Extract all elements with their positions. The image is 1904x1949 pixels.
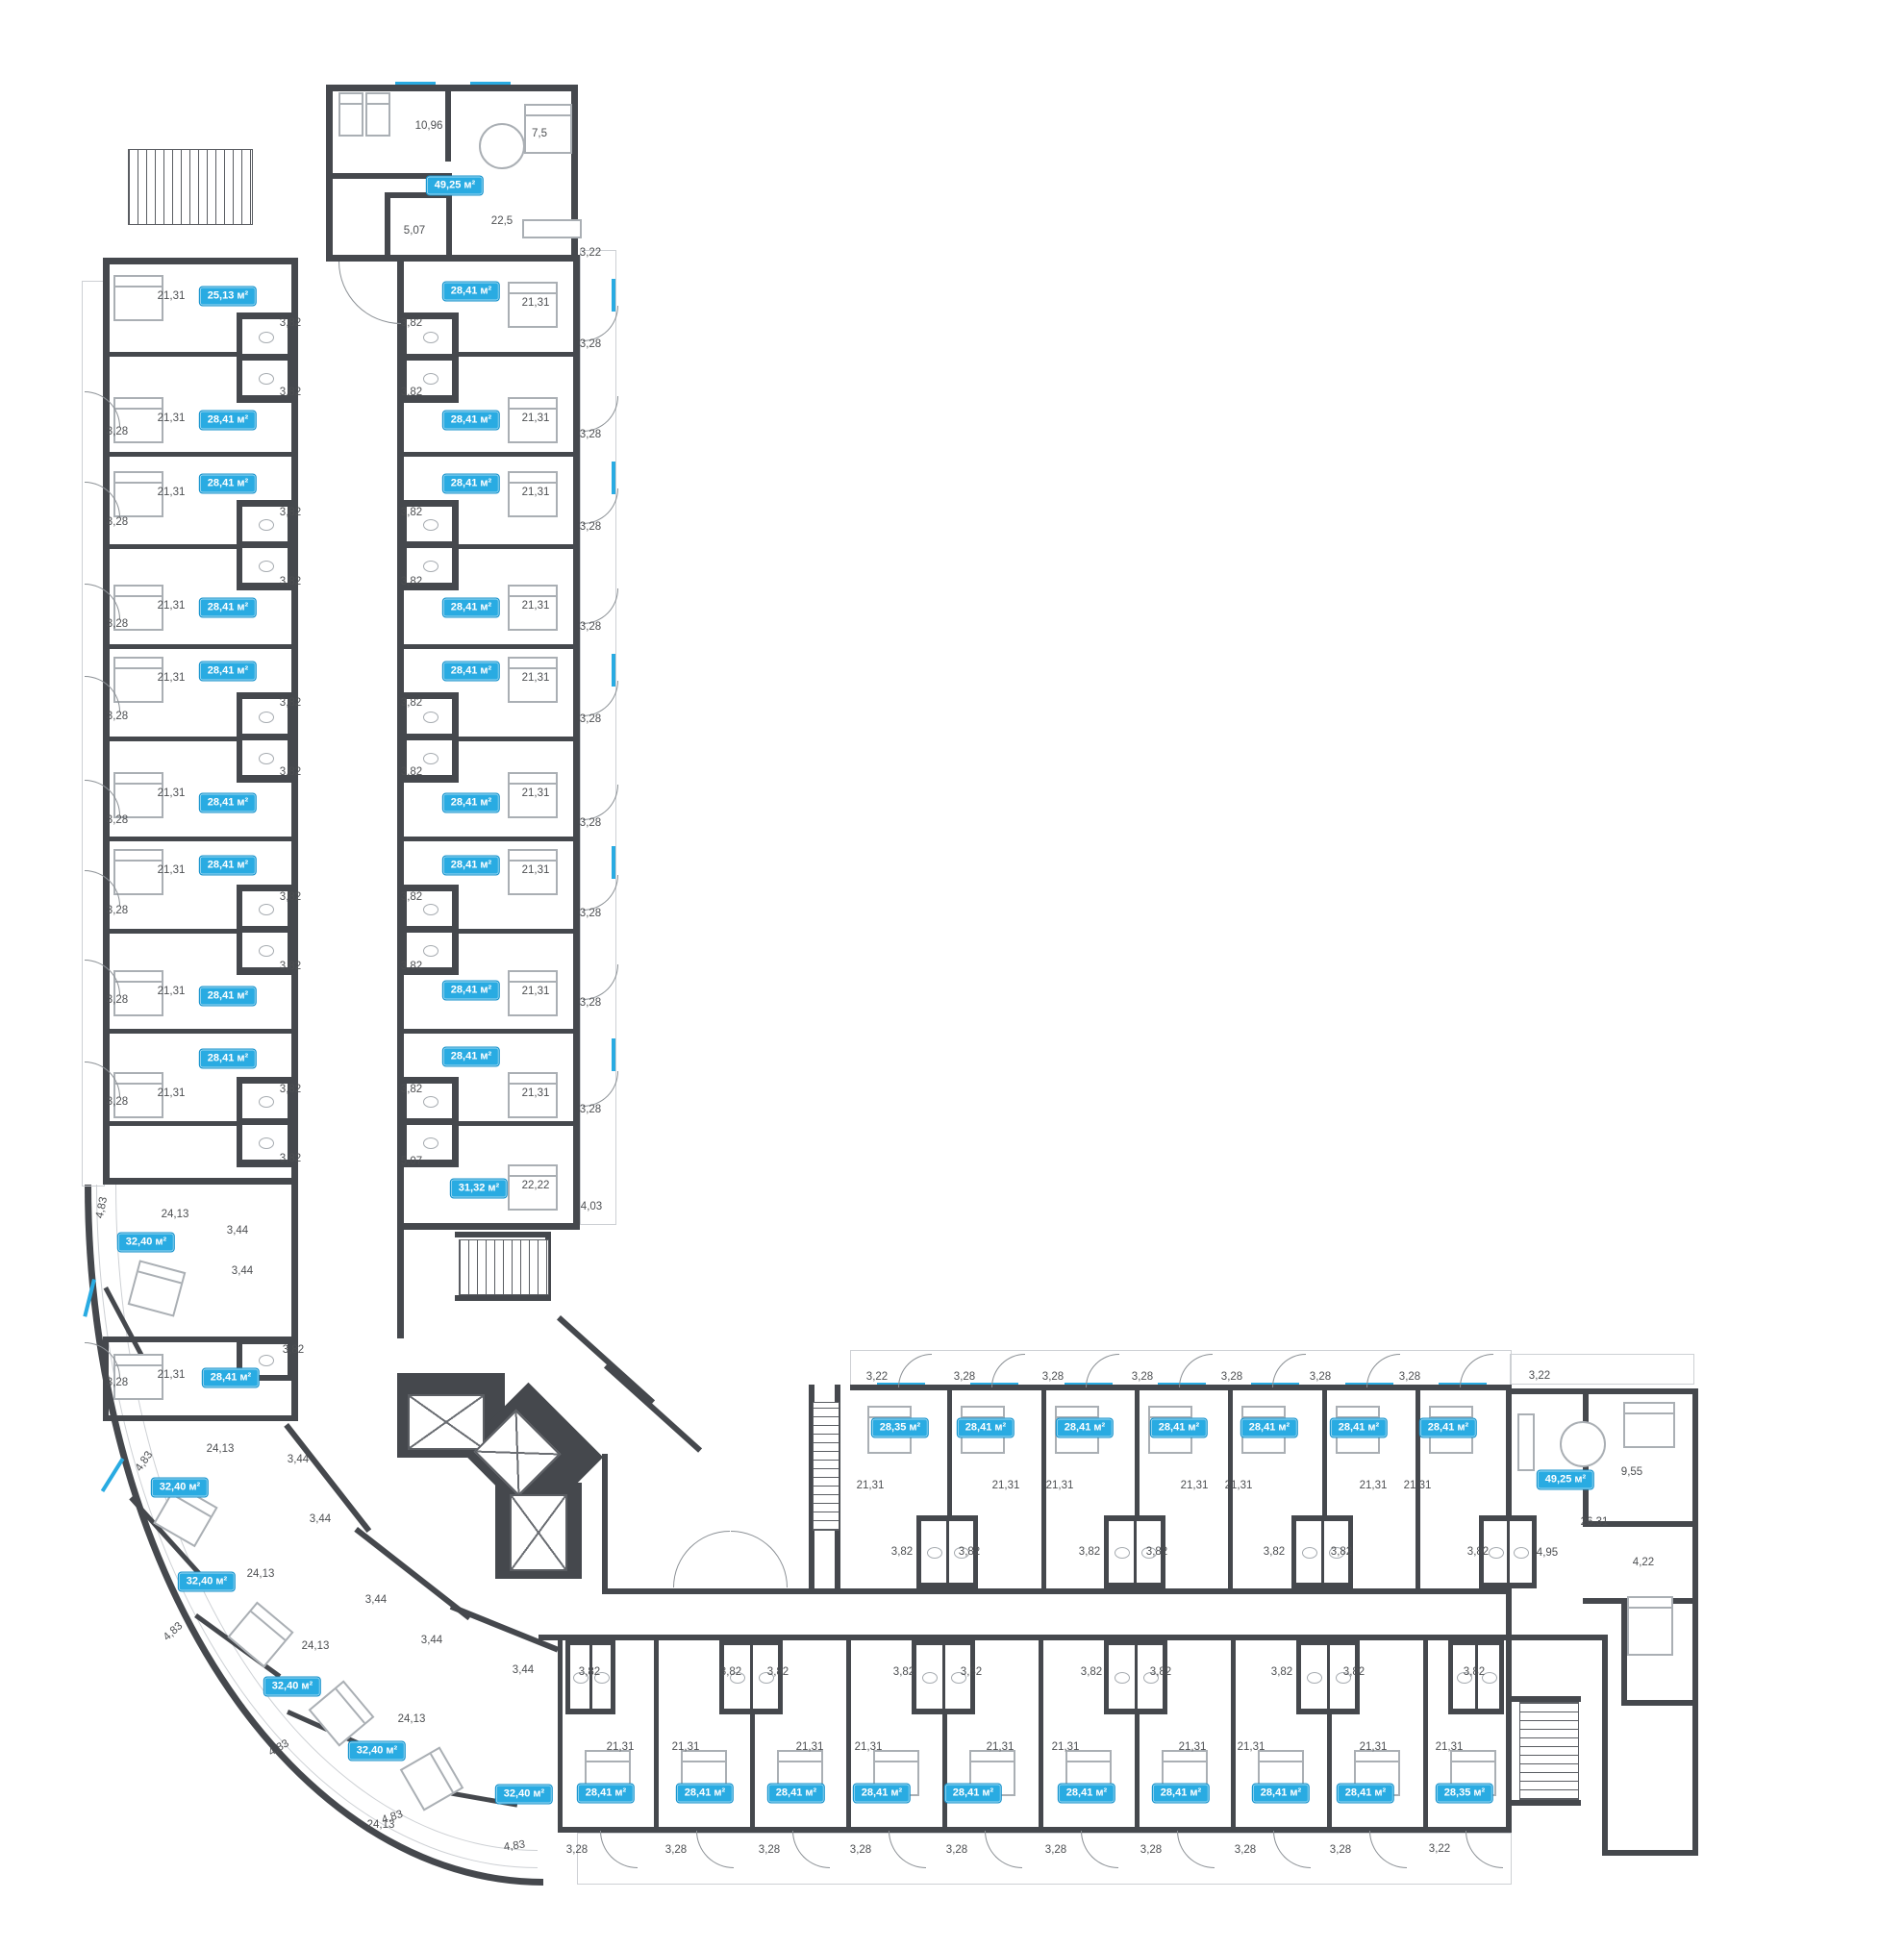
bathroom-area-label: 3,82	[280, 317, 301, 329]
wall-segment	[446, 192, 452, 258]
bathroom-area-label: 3,82	[401, 317, 422, 329]
bed-furniture	[113, 772, 163, 818]
bathroom-area-label: 3,82	[401, 576, 422, 587]
balcony-dimension-label: 3,28	[107, 905, 128, 916]
bed-furniture	[113, 275, 163, 321]
unit-area-badge[interactable]: 28,41 м²	[442, 282, 500, 302]
balcony-dimension-label: 4,83	[162, 1620, 186, 1643]
room-area-label: 7,5	[532, 128, 547, 139]
room-area-label: 10,96	[415, 120, 443, 132]
toilet-icon	[259, 561, 274, 572]
unit-area-badge[interactable]: 28,41 м²	[944, 1784, 1002, 1804]
balcony-dimension-label: 3,28	[580, 521, 601, 533]
unit-area-badge[interactable]: 28,41 м²	[1150, 1418, 1208, 1438]
toilet-icon	[927, 1547, 942, 1559]
unit-area-badge[interactable]: 28,41 м²	[442, 793, 500, 813]
balcony-dimension-label: 3,28	[1045, 1844, 1066, 1856]
balcony-dimension-label: 3,28	[580, 338, 601, 350]
toilet-icon	[259, 332, 274, 343]
wall-segment	[103, 1178, 298, 1185]
room-area-label: 21,31	[1360, 1480, 1388, 1491]
bathroom-area-label: 3,82	[579, 1666, 600, 1678]
toilet-icon	[259, 1355, 274, 1366]
room-area-label: 21,31	[607, 1741, 635, 1753]
toilet-icon	[423, 753, 438, 764]
unit-area-badge[interactable]: 28,41 м²	[199, 411, 257, 431]
elevator-shaft-icon	[510, 1494, 567, 1571]
bathroom-area-label: 3,82	[1467, 1546, 1489, 1558]
room-area-label: 21,31	[672, 1741, 700, 1753]
room-area-label: 21,31	[158, 412, 186, 424]
unit-area-badge[interactable]: 28,41 м²	[1252, 1784, 1310, 1804]
bathroom-area-label: 3,82	[1271, 1666, 1292, 1678]
room-area-label: 21,31	[1225, 1480, 1253, 1491]
bathroom-area-label: 3,82	[1464, 1666, 1485, 1678]
wall-segment	[109, 837, 292, 841]
room-area-label: 21,31	[522, 487, 550, 498]
balcony-dimension-label: 4,03	[581, 1201, 602, 1212]
wall-segment	[397, 1230, 404, 1338]
room-area-label: 21,31	[1360, 1741, 1388, 1753]
balcony-dimension-label: 3,28	[580, 713, 601, 725]
balcony-dimension-label: 3,28	[1330, 1844, 1351, 1856]
round-table-furniture	[1560, 1421, 1606, 1467]
room-area-label: 22,22	[522, 1180, 550, 1191]
unit-area-badge[interactable]: 28,41 м²	[442, 1047, 500, 1067]
door-swing-arc	[338, 262, 401, 324]
wall-segment	[403, 1029, 574, 1034]
bathroom-area-label: 3,82	[1079, 1546, 1100, 1558]
unit-area-badge[interactable]: 32,40 м²	[263, 1677, 321, 1697]
room-area-label: 24,13	[247, 1568, 275, 1580]
toilet-icon	[259, 712, 274, 723]
bathroom-area-label: 3,82	[1150, 1666, 1171, 1678]
wall-segment	[1039, 1639, 1043, 1829]
bathroom-area-label: 3,82	[1081, 1666, 1102, 1678]
elevator-shaft-icon	[408, 1394, 485, 1450]
wall-segment	[573, 255, 580, 1230]
window-marker	[612, 1038, 615, 1071]
balcony-dimension-label: 3,28	[946, 1844, 967, 1856]
wall-segment	[326, 85, 578, 91]
bed-furniture	[338, 92, 363, 137]
unit-area-badge[interactable]: 28,41 м²	[199, 793, 257, 813]
bathroom-area-label: 3,82	[893, 1666, 914, 1678]
wall-segment	[558, 1639, 563, 1829]
unit-area-badge[interactable]: 32,40 м²	[151, 1478, 209, 1498]
toilet-icon	[1514, 1547, 1529, 1559]
room-area-label: 21,31	[1181, 1480, 1209, 1491]
wall-segment	[654, 1639, 659, 1829]
bathroom-area-label: 3,82	[720, 1666, 741, 1678]
wall-segment	[403, 452, 574, 457]
wall-segment	[109, 452, 292, 457]
toilet-icon	[259, 373, 274, 385]
door-swing-arc	[85, 960, 120, 995]
wall-segment	[103, 258, 298, 264]
bed-furniture	[1627, 1596, 1673, 1656]
wall-segment	[455, 1232, 551, 1237]
balcony-dimension-label: 3,28	[850, 1844, 871, 1856]
room-area-label: 21,31	[522, 864, 550, 876]
bathroom-area-label: 3,82	[401, 697, 422, 709]
floor-plan-canvas: 10,967,522,521,3121,3121,3121,3121,3121,…	[0, 0, 1904, 1949]
room-area-label: 21,31	[522, 1087, 550, 1099]
room-area-label: 21,31	[522, 672, 550, 684]
toilet-icon	[423, 945, 438, 957]
toilet-icon	[259, 753, 274, 764]
bathroom-area-label: 3,82	[961, 1666, 982, 1678]
wall-segment	[445, 85, 451, 162]
round-table-furniture	[479, 123, 525, 169]
unit-area-badge[interactable]: 28,41 м²	[442, 662, 500, 682]
bathroom-area-label: 3,44	[227, 1225, 248, 1237]
unit-area-badge[interactable]: 28,41 м²	[577, 1784, 635, 1804]
unit-area-badge[interactable]: 49,25 м²	[426, 176, 484, 196]
bathroom-area-label: 4,22	[1633, 1557, 1654, 1568]
unit-area-badge[interactable]: 49,25 м²	[1537, 1470, 1594, 1490]
room-area-label: 21,31	[1052, 1741, 1080, 1753]
room-area-label: 21,31	[992, 1480, 1020, 1491]
toilet-icon	[259, 904, 274, 915]
unit-area-badge[interactable]: 28,41 м²	[442, 474, 500, 494]
balcony-dimension-label: 3,28	[580, 997, 601, 1009]
bathroom-area-label: 5,07	[401, 1156, 422, 1167]
toilet-icon	[423, 373, 438, 385]
unit-area-badge[interactable]: 28,41 м²	[957, 1418, 1015, 1438]
unit-area-badge[interactable]: 28,41 м²	[853, 1784, 911, 1804]
window-marker	[101, 1458, 125, 1492]
balcony-dimension-label: 3,28	[580, 908, 601, 919]
wall-segment	[1506, 1388, 1512, 1640]
room-area-label: 21,31	[158, 1369, 186, 1381]
balcony-dimension-label: 3,22	[1429, 1843, 1450, 1855]
balcony-dimension-label: 3,28	[665, 1844, 687, 1856]
unit-area-badge[interactable]: 28,41 м²	[767, 1784, 825, 1804]
bathroom-area-label: 3,82	[401, 387, 422, 398]
room-area-label: 21,31	[1046, 1480, 1074, 1491]
staircase	[459, 1239, 549, 1295]
wall-segment	[1692, 1388, 1698, 1856]
room-area-label: 22,5	[491, 215, 513, 227]
unit-area-badge[interactable]: 28,41 м²	[202, 1368, 260, 1388]
wall-segment	[1602, 1850, 1698, 1856]
wall-segment	[602, 1588, 854, 1594]
toilet-icon	[423, 519, 438, 531]
bathroom-area-label: 3,44	[310, 1513, 331, 1525]
bathroom-area-label: 3,82	[280, 1084, 301, 1095]
bed-furniture	[365, 92, 390, 137]
bathroom-area-label: 5,07	[404, 225, 425, 237]
unit-area-badge[interactable]: 28,35 м²	[871, 1418, 929, 1438]
bathroom-area-label: 3,82	[280, 507, 301, 518]
bed-furniture	[113, 1072, 163, 1118]
wall-segment	[109, 644, 292, 649]
wall-segment	[397, 1223, 580, 1230]
unit-area-badge[interactable]: 28,35 м²	[1436, 1784, 1493, 1804]
room-area-label: 21,31	[158, 787, 186, 799]
unit-area-badge[interactable]: 32,40 м²	[117, 1233, 175, 1253]
balcony-dimension-label: 3,28	[1042, 1371, 1064, 1383]
toilet-icon	[423, 712, 438, 723]
unit-area-badge[interactable]: 28,41 м²	[199, 474, 257, 494]
wall-segment	[403, 644, 574, 649]
bathroom-area-label: 3,82	[280, 766, 301, 778]
window-marker	[612, 846, 615, 879]
room-area-label: 21,31	[522, 600, 550, 612]
bathroom-area-label: 3,44	[288, 1454, 309, 1465]
bathroom-area-label: 3,82	[1146, 1546, 1167, 1558]
wall-segment	[850, 1588, 1512, 1594]
bed-furniture	[113, 471, 163, 517]
bathroom-area-label: 3,82	[959, 1546, 980, 1558]
bathroom-area-label: 3,82	[891, 1546, 913, 1558]
unit-area-badge[interactable]: 28,41 м²	[1419, 1418, 1477, 1438]
bathroom-area-label: 3,82	[280, 891, 301, 903]
bed-furniture	[113, 849, 163, 895]
wall-segment	[1602, 1635, 1608, 1856]
wall-segment	[604, 1363, 702, 1453]
balcony-dimension-label: 3,28	[954, 1371, 975, 1383]
toilet-icon	[423, 1137, 438, 1149]
unit-area-badge[interactable]: 28,41 м²	[442, 981, 500, 1001]
balcony-dimension-label: 3,22	[1529, 1370, 1550, 1382]
door-swing-arc	[85, 1062, 120, 1097]
toilet-icon	[259, 1096, 274, 1108]
toilet-icon	[423, 1096, 438, 1108]
room-area-label: 21,31	[158, 864, 186, 876]
balcony-dimension-label: 3,28	[759, 1844, 780, 1856]
unit-area-badge[interactable]: 28,41 м²	[1056, 1418, 1114, 1438]
unit-area-badge[interactable]: 28,41 м²	[442, 411, 500, 431]
balcony-dimension-label: 3,28	[580, 429, 601, 440]
room-area-label: 21,31	[1179, 1741, 1207, 1753]
bathroom-area-label: 3,82	[280, 961, 301, 972]
unit-area-badge[interactable]: 28,41 м²	[199, 662, 257, 682]
unit-area-badge[interactable]: 28,41 м²	[676, 1784, 734, 1804]
unit-area-badge[interactable]: 28,41 м²	[1058, 1784, 1115, 1804]
wall-segment	[1231, 1639, 1236, 1829]
room-area-label: 21,31	[796, 1741, 824, 1753]
room-area-label: 21,31	[855, 1741, 883, 1753]
wall-segment	[602, 1454, 608, 1594]
toilet-icon	[1302, 1547, 1317, 1559]
room-area-label: 21,31	[158, 290, 186, 302]
unit-area-badge[interactable]: 25,13 м²	[199, 287, 257, 307]
wall-segment	[455, 1295, 551, 1301]
wall-segment	[846, 1639, 851, 1829]
door-swing-arc	[731, 1531, 788, 1587]
balcony-dimension-label: 3,28	[107, 814, 128, 826]
room-area-label: 24,13	[302, 1640, 330, 1652]
room-area-label: 24,13	[207, 1443, 235, 1455]
unit-area-badge[interactable]: 28,41 м²	[1330, 1418, 1388, 1438]
wall-segment	[385, 192, 390, 258]
wall-segment	[539, 1635, 1512, 1640]
room-area-label: 24,13	[162, 1209, 189, 1220]
toilet-icon	[1115, 1547, 1130, 1559]
unit-area-badge[interactable]: 31,32 м²	[450, 1179, 508, 1199]
unit-area-badge[interactable]: 28,41 м²	[199, 1049, 257, 1069]
bathroom-area-label: 3,44	[513, 1664, 534, 1676]
balcony-dimension-label: 3,28	[1140, 1844, 1162, 1856]
staircase	[128, 149, 253, 225]
wall-segment	[103, 1415, 298, 1421]
room-area-label: 24,13	[398, 1713, 426, 1725]
balcony-dimension-label: 3,28	[1235, 1844, 1256, 1856]
balcony-dimension-label: 3,28	[107, 618, 128, 630]
wall-segment	[291, 1185, 298, 1338]
unit-area-badge[interactable]: 32,40 м²	[178, 1572, 236, 1592]
unit-area-badge[interactable]: 28,41 м²	[442, 598, 500, 618]
unit-area-badge[interactable]: 32,40 м²	[348, 1741, 406, 1762]
room-area-label: 21,31	[158, 600, 186, 612]
door-swing-arc	[673, 1531, 730, 1587]
bathroom-area-label: 3,82	[1343, 1666, 1365, 1678]
bathroom-area-label: 3,82	[401, 507, 422, 518]
room-area-label: 9,55	[1621, 1466, 1642, 1478]
balcony-dimension-label: 3,28	[1221, 1371, 1242, 1383]
balcony-dimension-label: 3,28	[107, 711, 128, 722]
room-area-label: 21,31	[1238, 1741, 1265, 1753]
balcony-dimension-label: 3,28	[107, 1377, 128, 1388]
room-area-label: 21,31	[158, 487, 186, 498]
sofa-furniture	[1517, 1413, 1535, 1471]
bed-furniture	[113, 657, 163, 703]
balcony-dimension-label: 3,28	[1310, 1371, 1331, 1383]
bathroom-area-label: 3,82	[283, 1344, 304, 1356]
wall-segment	[1423, 1639, 1428, 1829]
toilet-icon	[423, 332, 438, 343]
room-area-label: 26,31	[1581, 1516, 1609, 1528]
unit-area-badge[interactable]: 28,41 м²	[199, 987, 257, 1007]
wall-segment	[1506, 1388, 1698, 1394]
balcony-dimension-label: 3,22	[580, 247, 601, 259]
unit-area-badge[interactable]: 32,40 м²	[495, 1785, 553, 1805]
room-area-label: 21,31	[857, 1480, 885, 1491]
unit-area-badge[interactable]: 28,41 м²	[1337, 1784, 1394, 1804]
bathroom-area-label: 3,82	[401, 1084, 422, 1095]
bathroom-area-label: 4,95	[1537, 1547, 1558, 1559]
toilet-icon	[423, 904, 438, 915]
bathroom-area-label: 3,82	[1264, 1546, 1285, 1558]
balcony-dimension-label: 3,28	[566, 1844, 588, 1856]
wall-segment	[1506, 1635, 1608, 1640]
toilet-icon	[1489, 1547, 1504, 1559]
wall-segment	[109, 1029, 292, 1034]
bathroom-area-label: 3,82	[280, 697, 301, 709]
balcony-dimension-label: 3,28	[580, 1104, 601, 1115]
bathroom-area-label: 3,82	[401, 891, 422, 903]
toilet-icon	[259, 519, 274, 531]
bathroom-area-label: 3,44	[232, 1265, 253, 1277]
room-area-label: 21,31	[158, 986, 186, 997]
room-area-label: 21,31	[158, 1087, 186, 1099]
bathroom-area-label: 3,44	[421, 1635, 442, 1646]
wall-segment	[1621, 1700, 1698, 1706]
room-area-label: 21,31	[158, 672, 186, 684]
bathroom-area-label: 3,82	[1331, 1546, 1352, 1558]
bathroom-area-label: 3,82	[280, 576, 301, 587]
balcony-dimension-label: 3,28	[580, 621, 601, 633]
balcony-dimension-label: 3,28	[1132, 1371, 1153, 1383]
balcony-dimension-label: 3,28	[1399, 1371, 1420, 1383]
room-area-label: 21,31	[1436, 1741, 1464, 1753]
balcony-dimension-label: 3,28	[107, 426, 128, 437]
unit-area-badge[interactable]: 28,41 м²	[442, 856, 500, 876]
unit-area-badge[interactable]: 28,41 м²	[1152, 1784, 1210, 1804]
wall-segment	[557, 1315, 655, 1405]
balcony-dimension-label: 3,28	[107, 516, 128, 528]
sofa-furniture	[522, 219, 582, 238]
wall-segment	[1512, 1800, 1581, 1806]
room-area-label: 21,31	[522, 297, 550, 309]
wall-segment	[397, 255, 580, 262]
unit-area-badge[interactable]: 28,41 м²	[1240, 1418, 1298, 1438]
bathroom-area-label: 3,82	[401, 961, 422, 972]
bed-furniture	[113, 970, 163, 1016]
balcony-dimension-label: 3,28	[107, 1096, 128, 1108]
room-area-label: 21,31	[987, 1741, 1015, 1753]
unit-area-badge[interactable]: 28,41 м²	[199, 856, 257, 876]
bathroom-area-label: 3,82	[280, 387, 301, 398]
toilet-icon	[259, 1137, 274, 1149]
balcony-dimension-label: 3,22	[866, 1371, 888, 1383]
balcony-dimension-label: 3,28	[107, 994, 128, 1006]
balcony-dimension-label: 3,28	[580, 817, 601, 829]
bathroom-area-label: 3,82	[280, 1153, 301, 1164]
toilet-icon	[423, 561, 438, 572]
bathroom-area-label: 3,82	[767, 1666, 789, 1678]
room-area-label: 21,31	[1404, 1480, 1432, 1491]
bathroom-area-label: 3,44	[365, 1594, 387, 1606]
room-area-label: 21,31	[522, 787, 550, 799]
bathroom-area-label: 3,82	[401, 766, 422, 778]
bed-furniture	[1623, 1402, 1675, 1448]
toilet-icon	[259, 945, 274, 957]
room-area-label: 21,31	[522, 986, 550, 997]
unit-area-badge[interactable]: 28,41 м²	[199, 598, 257, 618]
staircase	[813, 1402, 839, 1531]
staircase	[1519, 1702, 1579, 1800]
room-area-label: 21,31	[522, 412, 550, 424]
wall-segment	[403, 837, 574, 841]
